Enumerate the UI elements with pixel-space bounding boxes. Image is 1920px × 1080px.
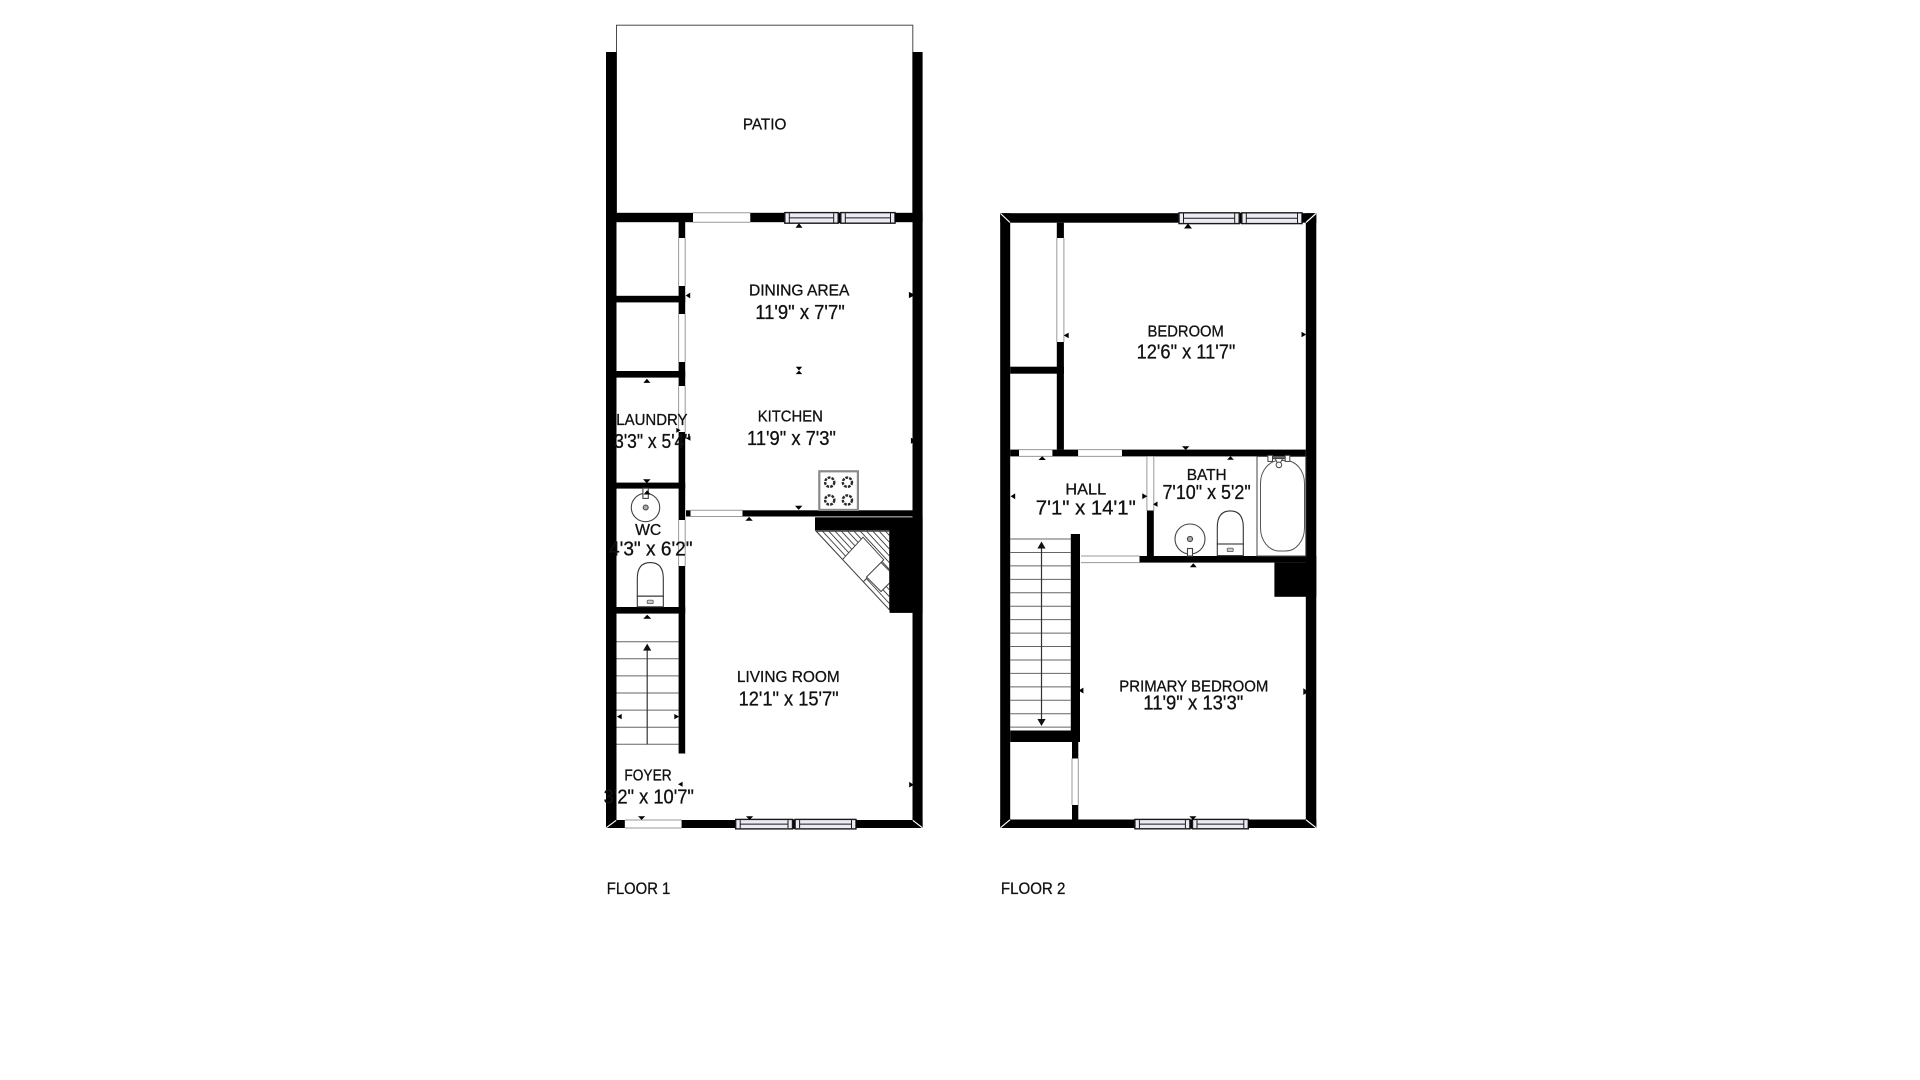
svg-text:HALL: HALL — [1065, 482, 1106, 499]
svg-text:PATIO: PATIO — [743, 116, 787, 133]
svg-text:11'9" x 7'7": 11'9" x 7'7" — [755, 302, 845, 324]
svg-text:FLOOR 1: FLOOR 1 — [607, 879, 671, 898]
svg-text:11'9" x 13'3": 11'9" x 13'3" — [1143, 693, 1243, 715]
svg-text:12'6" x 11'7": 12'6" x 11'7" — [1137, 341, 1236, 363]
svg-text:3'2" x 10'7": 3'2" x 10'7" — [604, 787, 694, 809]
svg-text:FOYER: FOYER — [624, 768, 671, 785]
svg-text:LAUNDRY: LAUNDRY — [616, 412, 688, 429]
svg-text:KITCHEN: KITCHEN — [758, 409, 823, 426]
svg-text:3'3" x 5'4": 3'3" x 5'4" — [614, 431, 690, 453]
svg-text:LIVING ROOM: LIVING ROOM — [737, 669, 840, 686]
svg-text:4'3" x 6'2": 4'3" x 6'2" — [609, 538, 693, 560]
svg-text:WC: WC — [635, 522, 661, 539]
svg-text:7'10" x 5'2": 7'10" x 5'2" — [1162, 482, 1250, 504]
svg-text:BEDROOM: BEDROOM — [1148, 323, 1224, 340]
svg-text:DINING AREA: DINING AREA — [749, 282, 850, 299]
svg-text:FLOOR 2: FLOOR 2 — [1001, 879, 1066, 898]
svg-text:12'1" x 15'7": 12'1" x 15'7" — [739, 689, 839, 711]
svg-text:11'9" x 7'3": 11'9" x 7'3" — [747, 428, 836, 450]
svg-text:7'1" x 14'1": 7'1" x 14'1" — [1036, 498, 1136, 520]
